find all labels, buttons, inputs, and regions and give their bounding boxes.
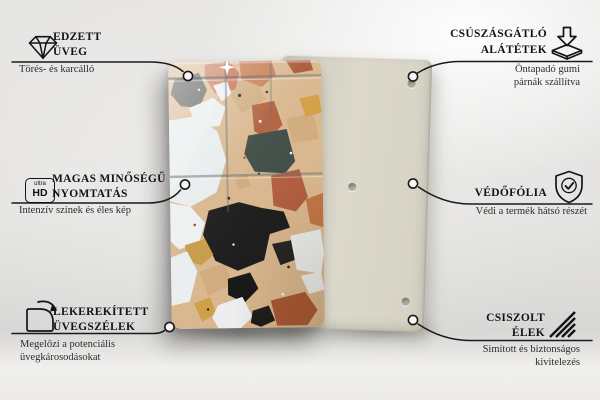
product-front-panel [168, 60, 325, 329]
mounting-hole [348, 183, 356, 191]
mounting-hole [402, 298, 410, 306]
product-feature-diagram: EDZETT ÜVEG Törés- és karcálló ultra HD … [0, 0, 600, 400]
glass-reflection [168, 60, 325, 329]
mounting-hole [407, 80, 415, 88]
